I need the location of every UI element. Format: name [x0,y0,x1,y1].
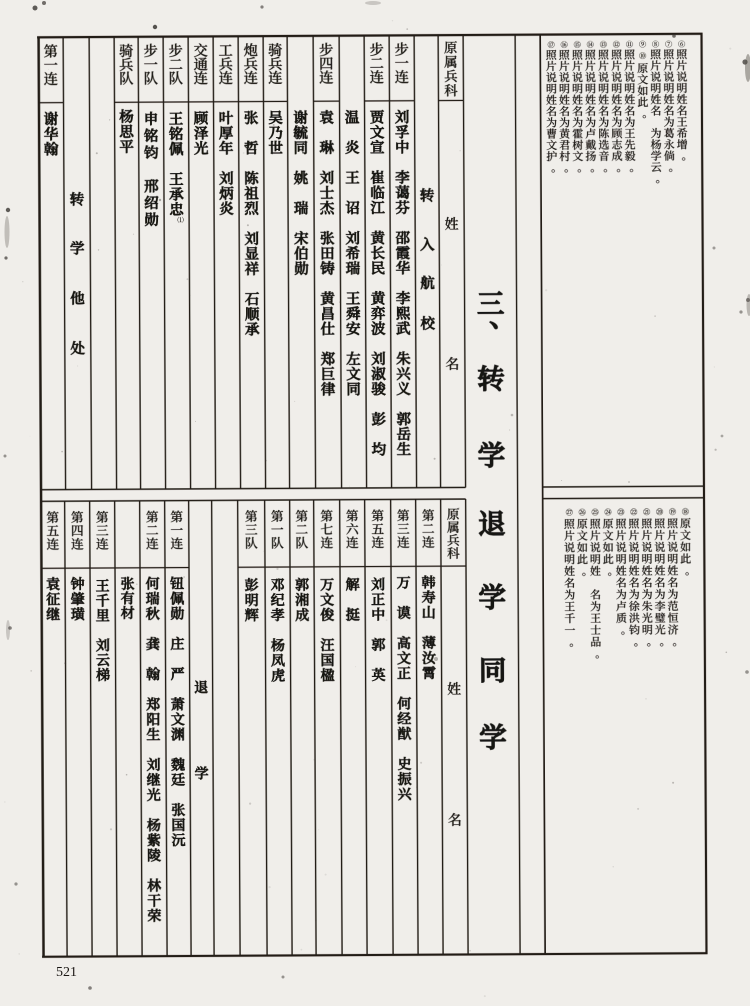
svg-text:521: 521 [56,965,77,980]
